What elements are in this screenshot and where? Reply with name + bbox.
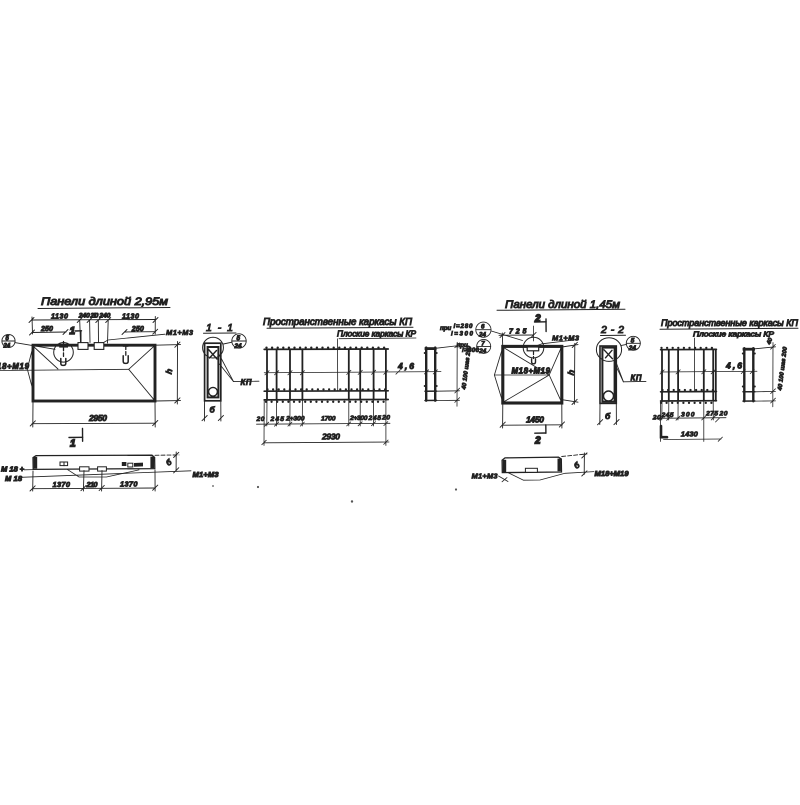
svg-text:210: 210 [86, 480, 99, 489]
svg-text:245: 245 [270, 416, 285, 423]
svg-text:М 18: М 18 [5, 474, 23, 483]
svg-text:1130: 1130 [122, 313, 139, 321]
svg-text:240: 240 [78, 313, 90, 320]
svg-text:2: 2 [534, 314, 541, 325]
svg-text:24: 24 [478, 348, 486, 355]
svg-text:1: 1 [70, 439, 76, 450]
svg-text:1370: 1370 [120, 480, 138, 489]
svg-text:2-2: 2-2 [600, 324, 624, 336]
svg-text:Пространственные каркасы КП: Пространственные каркасы КП [661, 318, 799, 328]
svg-text:М18÷М19: М18÷М19 [512, 366, 551, 375]
svg-text:6: 6 [481, 324, 485, 331]
svg-text:М18÷М19: М18÷М19 [595, 469, 630, 478]
svg-text:18÷М19: 18÷М19 [0, 362, 30, 371]
svg-text:24: 24 [234, 343, 243, 350]
svg-text:4,6: 4,6 [725, 360, 742, 370]
svg-text:250: 250 [131, 325, 144, 333]
svg-text:24: 24 [628, 345, 637, 352]
svg-text:24: 24 [3, 344, 11, 350]
svg-text:М 18 ÷: М 18 ÷ [1, 464, 25, 473]
svg-text:М1÷М3: М1÷М3 [193, 470, 220, 479]
svg-text:250: 250 [40, 325, 53, 333]
svg-text:2÷300: 2÷300 [349, 415, 368, 422]
svg-text:4,6: 4,6 [397, 361, 414, 371]
svg-text:Плоские каркасы КР: Плоские каркасы КР [693, 330, 775, 339]
svg-text:7: 7 [481, 340, 485, 347]
svg-text:275: 275 [705, 411, 718, 418]
svg-text:КП: КП [241, 378, 252, 387]
svg-text:Панели длиной 2,95м: Панели длиной 2,95м [41, 296, 169, 308]
svg-text:1700: 1700 [321, 415, 336, 422]
svg-text:725: 725 [509, 328, 528, 336]
svg-text:б: б [605, 411, 611, 421]
svg-text:1-1: 1-1 [206, 322, 233, 334]
svg-text:240: 240 [98, 313, 110, 320]
svg-text:20: 20 [652, 415, 661, 422]
svg-text:300: 300 [681, 411, 695, 418]
svg-text:Плоские каркасы КР: Плоские каркасы КР [337, 329, 417, 338]
svg-text:при: при [440, 325, 452, 332]
svg-text:М1÷М3: М1÷М3 [472, 471, 499, 480]
svg-text:2950: 2950 [88, 413, 107, 423]
svg-text:2930: 2930 [321, 432, 340, 442]
svg-text:1370: 1370 [53, 480, 71, 489]
svg-text:2÷300: 2÷300 [285, 416, 305, 423]
svg-text:М1÷М3: М1÷М3 [552, 334, 580, 343]
svg-text:М1÷М3: М1÷М3 [166, 328, 194, 337]
svg-text:Пространственные каркасы КП: Пространственные каркасы КП [263, 317, 413, 328]
svg-text:245: 245 [368, 415, 382, 422]
svg-text:1130: 1130 [51, 313, 68, 321]
svg-text:20: 20 [256, 416, 265, 423]
svg-text:5: 5 [237, 335, 241, 342]
svg-text:1: 1 [70, 326, 76, 337]
svg-text:1450: 1450 [526, 414, 544, 424]
svg-text:КП: КП [631, 374, 642, 383]
svg-text:l=280: l=280 [454, 323, 474, 330]
svg-text:2: 2 [534, 436, 541, 447]
svg-text:б: б [210, 405, 216, 415]
svg-text:1430: 1430 [681, 430, 699, 439]
svg-text:20: 20 [381, 415, 390, 422]
svg-text:20: 20 [719, 410, 728, 417]
svg-text:l=300: l=300 [451, 331, 474, 338]
svg-text:245: 245 [661, 412, 674, 419]
svg-text:5: 5 [631, 337, 635, 344]
svg-text:24: 24 [478, 331, 486, 338]
svg-text:210: 210 [89, 313, 98, 320]
